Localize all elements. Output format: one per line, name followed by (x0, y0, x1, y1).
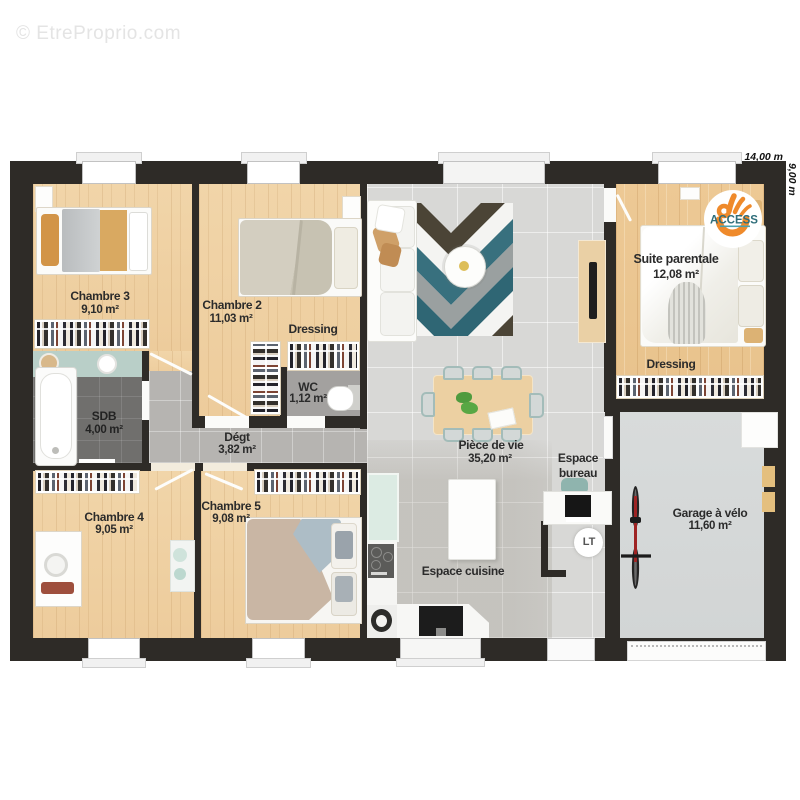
svg-text:ACCESS: ACCESS (710, 215, 758, 227)
